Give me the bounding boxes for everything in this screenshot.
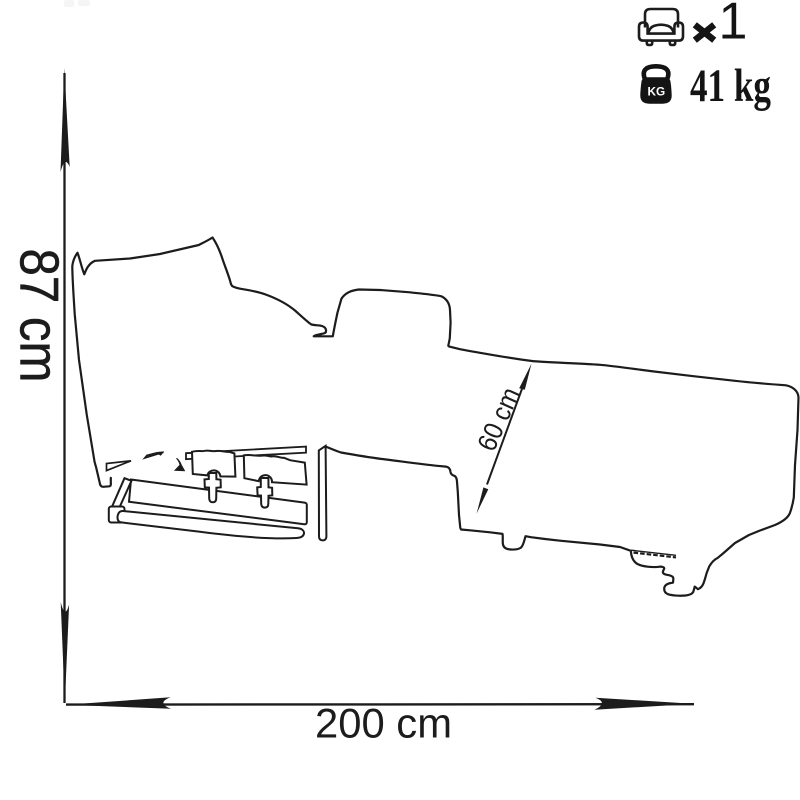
svg-text:87 cm: 87 cm — [9, 249, 71, 383]
svg-text:41 kg: 41 kg — [690, 60, 771, 112]
svg-text:200 cm: 200 cm — [315, 700, 452, 747]
svg-text:KG: KG — [647, 84, 665, 98]
svg-text:1: 1 — [719, 0, 748, 50]
